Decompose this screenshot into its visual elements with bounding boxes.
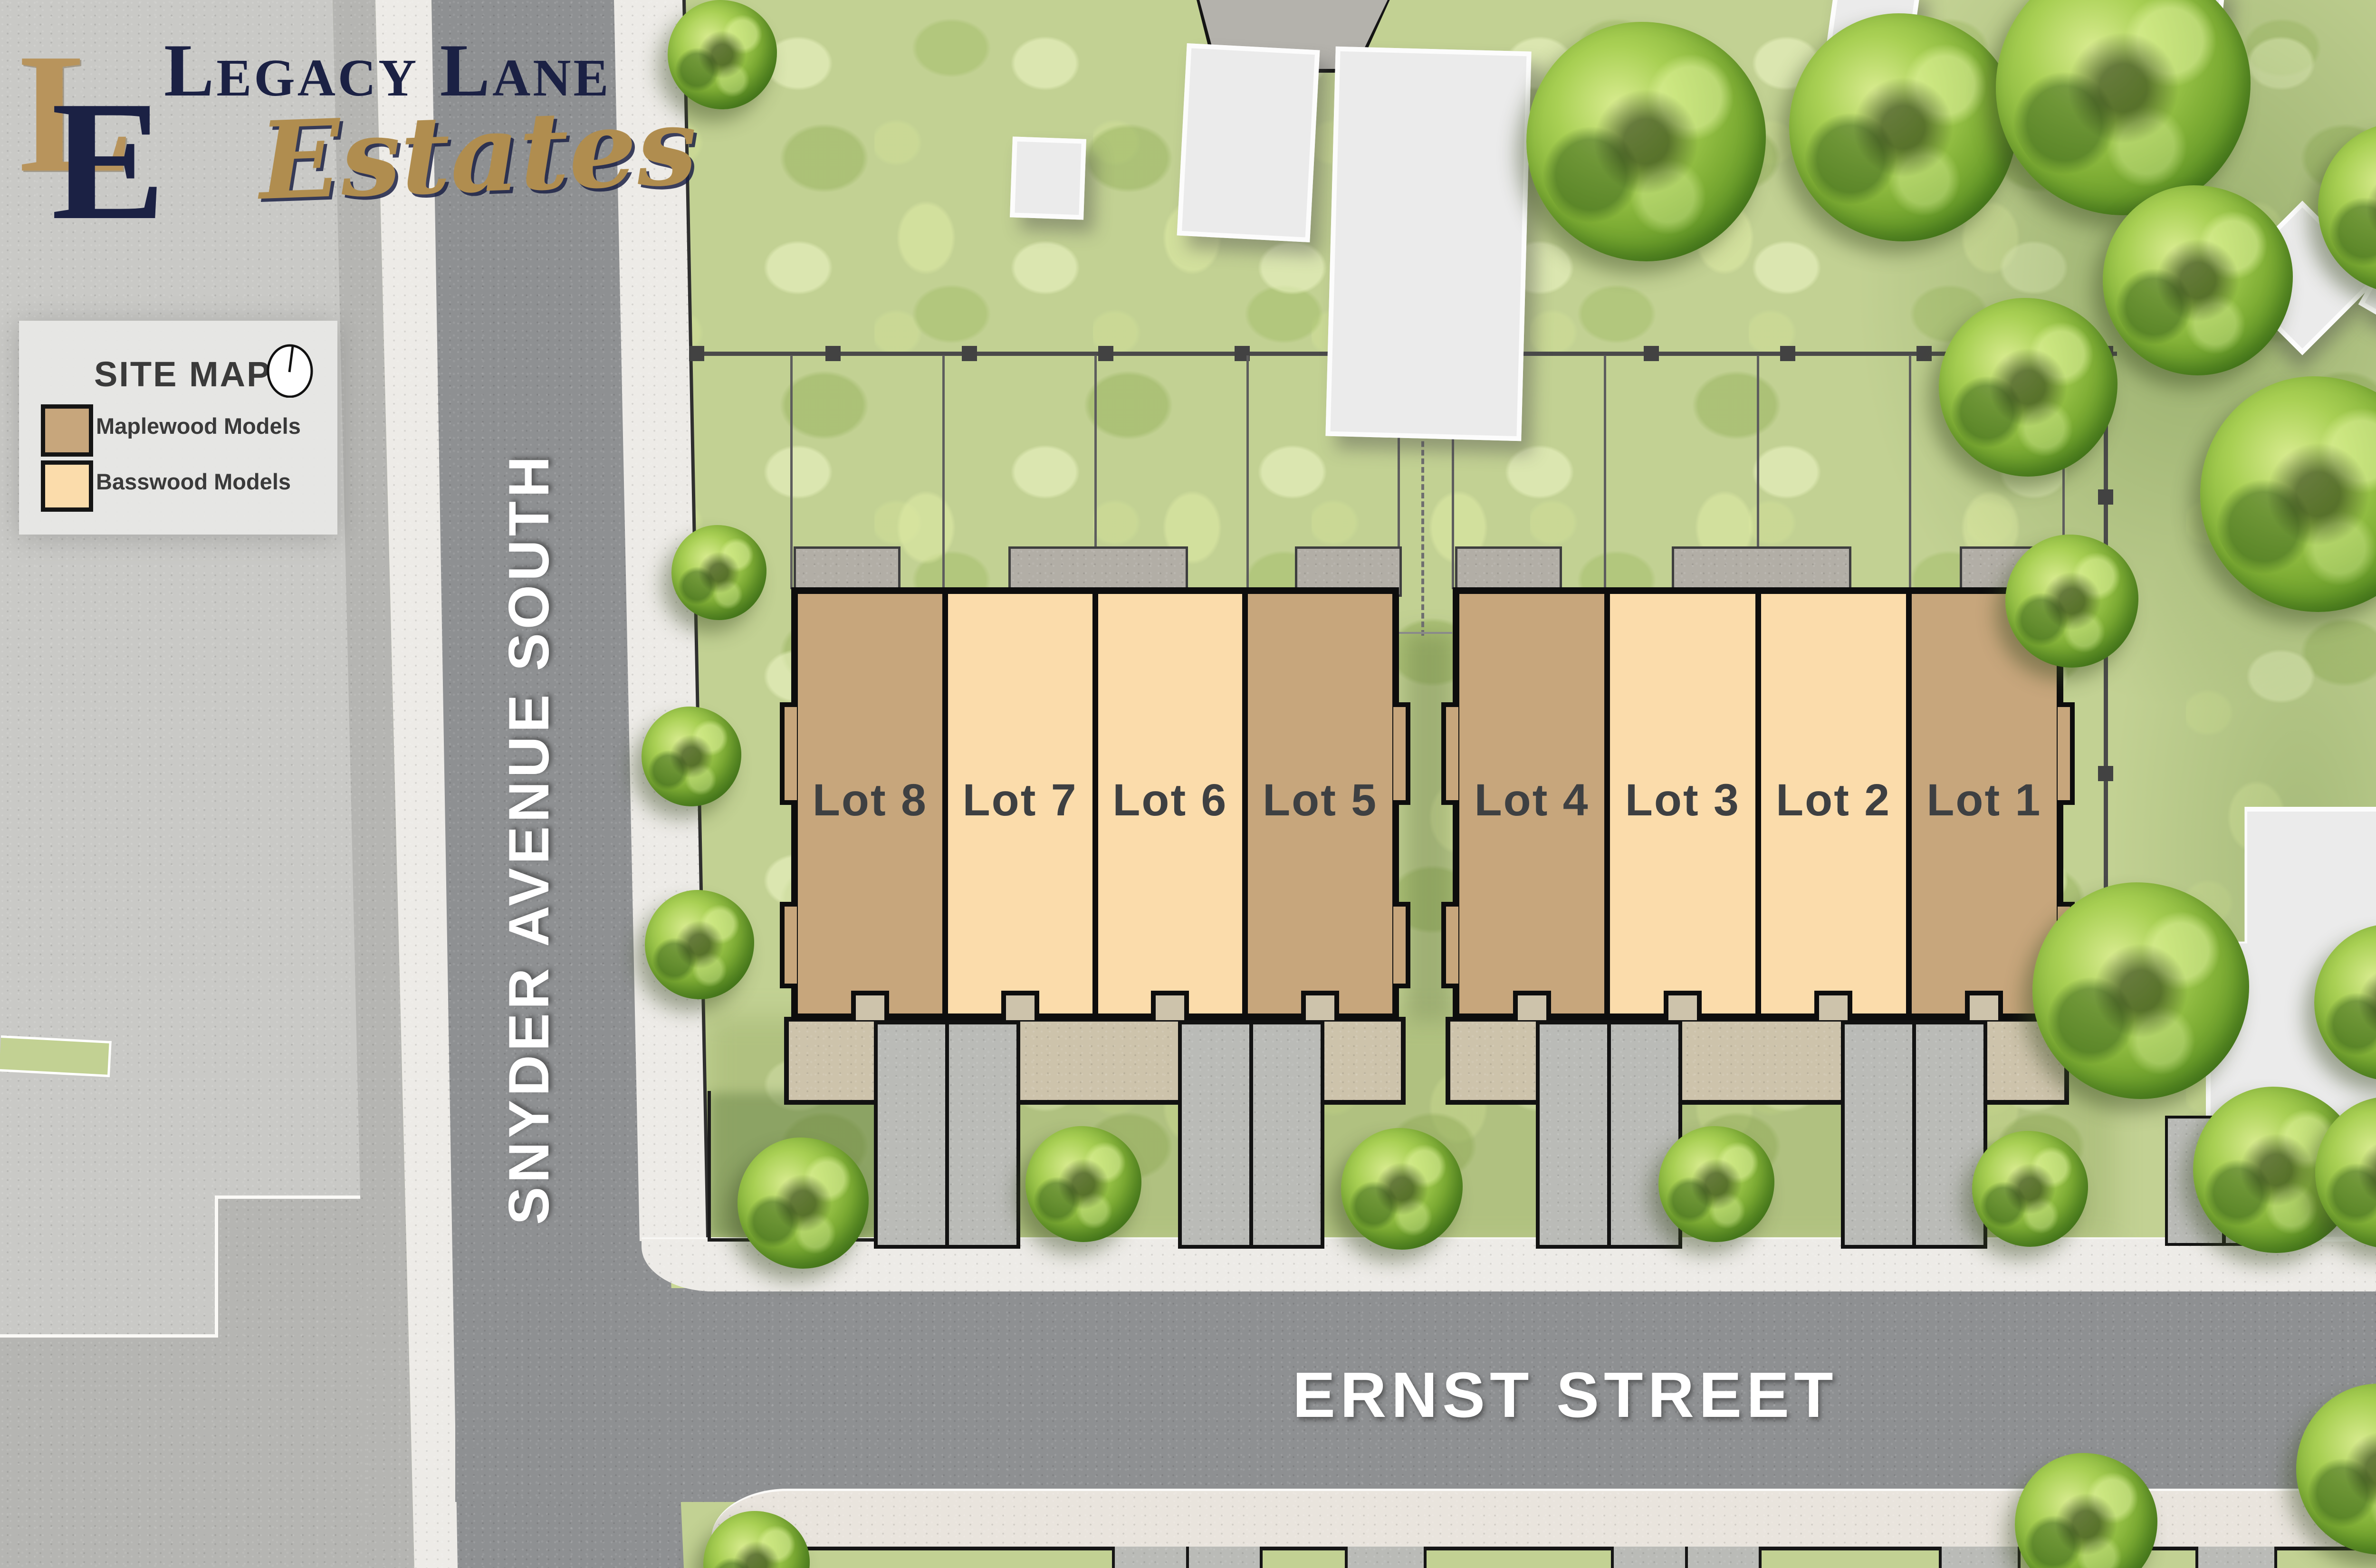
driveway [1345, 1547, 1427, 1568]
legend-swatch-basswood [41, 460, 93, 512]
tree [1526, 22, 1766, 261]
tree [645, 890, 754, 999]
legend-label-maplewood: Maplewood Models [96, 413, 301, 439]
driveway [1611, 1547, 1762, 1568]
townhouse-block-east: Lot 4 Lot 3 Lot 2 Lot 1 [1453, 587, 2063, 1020]
lot-entry-notch [1301, 991, 1339, 1020]
fence-post [825, 346, 841, 361]
tree [2005, 535, 2138, 668]
logo-subtitle: Estates [257, 93, 699, 215]
fence-post [2098, 766, 2113, 781]
logo-monogram-e: E [51, 75, 165, 246]
lot-label: Lot 2 [1761, 774, 1906, 826]
tree [671, 525, 766, 620]
lot-lot-3[interactable]: Lot 3 [1604, 594, 1755, 1013]
lot-lot-4[interactable]: Lot 4 [1459, 594, 1604, 1013]
driveway [874, 1021, 1020, 1249]
wall-bump [2058, 702, 2075, 805]
fence-post [1644, 346, 1659, 361]
tree [1658, 1126, 1774, 1242]
street-name-snyder: SNYDER AVENUE SOUTH [496, 452, 562, 1225]
wall-bump [1393, 902, 1410, 988]
existing-building [1010, 136, 1086, 220]
wall-bump [1393, 702, 1410, 805]
existing-building [1325, 47, 1531, 441]
street-name-ernst: ERNST STREET [1293, 1358, 1838, 1432]
lot-lot-8[interactable]: Lot 8 [798, 594, 942, 1013]
lot-entry-notch [1513, 991, 1551, 1020]
brand-logo: L E Legacy Lane Estates [0, 0, 713, 238]
lot-lot-7[interactable]: Lot 7 [942, 594, 1092, 1013]
driveway [1841, 1021, 1987, 1249]
wall-bump [1441, 902, 1458, 988]
wall-bump [780, 702, 797, 805]
lot-boundary-line [790, 355, 793, 589]
wall-bump [780, 902, 797, 988]
parking-grass-island [0, 1035, 112, 1077]
lot-entry-notch [1151, 991, 1189, 1020]
legend-title: SITE MAP [94, 354, 271, 394]
wall-bump [1441, 702, 1458, 805]
lot-label: Lot 4 [1459, 774, 1604, 826]
driveway [1939, 1547, 2021, 1568]
fence-post [962, 346, 977, 361]
lot-lot-6[interactable]: Lot 6 [1092, 594, 1243, 1013]
tree [1025, 1126, 1141, 1242]
lot-boundary-line [942, 355, 945, 589]
lot-label: Lot 1 [1912, 774, 2057, 826]
fence-post [689, 346, 704, 361]
lot-boundary-line [1604, 355, 1606, 589]
fence-post [1780, 346, 1795, 361]
tree [738, 1138, 869, 1269]
driveway [2195, 1547, 2277, 1568]
driveway [1178, 1021, 1324, 1249]
legend-swatch-maplewood [41, 404, 93, 457]
lot-label: Lot 5 [1248, 774, 1392, 826]
lot-lot-5[interactable]: Lot 5 [1242, 594, 1392, 1013]
lot-label: Lot 7 [948, 774, 1092, 826]
tree [2032, 882, 2249, 1099]
fence-post [1098, 346, 1113, 361]
townhouse-block-west: Lot 8 Lot 7 Lot 6 Lot 5 [791, 587, 1399, 1020]
legend-label-basswood: Basswood Models [96, 468, 291, 495]
legend-panel: SITE MAP Maplewood Models Basswood Model… [19, 321, 337, 535]
gap-cross-line [1393, 632, 1452, 634]
lot-label: Lot 6 [1098, 774, 1243, 826]
lot-entry-notch [1965, 991, 2003, 1020]
existing-building [1177, 43, 1320, 242]
fence-post [1916, 346, 1932, 361]
lot-boundary-line [1909, 355, 1911, 589]
compass-icon [265, 343, 315, 398]
tree [642, 707, 741, 806]
curb-line [215, 1195, 218, 1337]
lot-boundary-line [1246, 355, 1249, 589]
curb-line [216, 1195, 364, 1199]
lot-entry-notch [851, 991, 889, 1020]
driveway [1112, 1547, 1263, 1568]
tree [1972, 1131, 2088, 1247]
lot-lot-2[interactable]: Lot 2 [1755, 594, 1906, 1013]
tree [1341, 1128, 1463, 1250]
lot-label: Lot 8 [798, 774, 942, 826]
tree [1789, 13, 2017, 241]
site-map-canvas: Lot 8 Lot 7 Lot 6 Lot 5 Lot 4 Lot 3 Lot … [0, 0, 2376, 1568]
tree [1939, 298, 2117, 477]
curb-line [0, 1334, 218, 1338]
tree [2103, 185, 2293, 375]
lot-entry-notch [1664, 991, 1702, 1020]
lot-entry-notch [1001, 991, 1039, 1020]
lot-lot-1[interactable]: Lot 1 [1906, 594, 2057, 1013]
fence-post [2098, 489, 2113, 505]
lot-entry-notch [1814, 991, 1852, 1020]
lot-label: Lot 3 [1610, 774, 1755, 826]
driveway [1536, 1021, 1682, 1249]
